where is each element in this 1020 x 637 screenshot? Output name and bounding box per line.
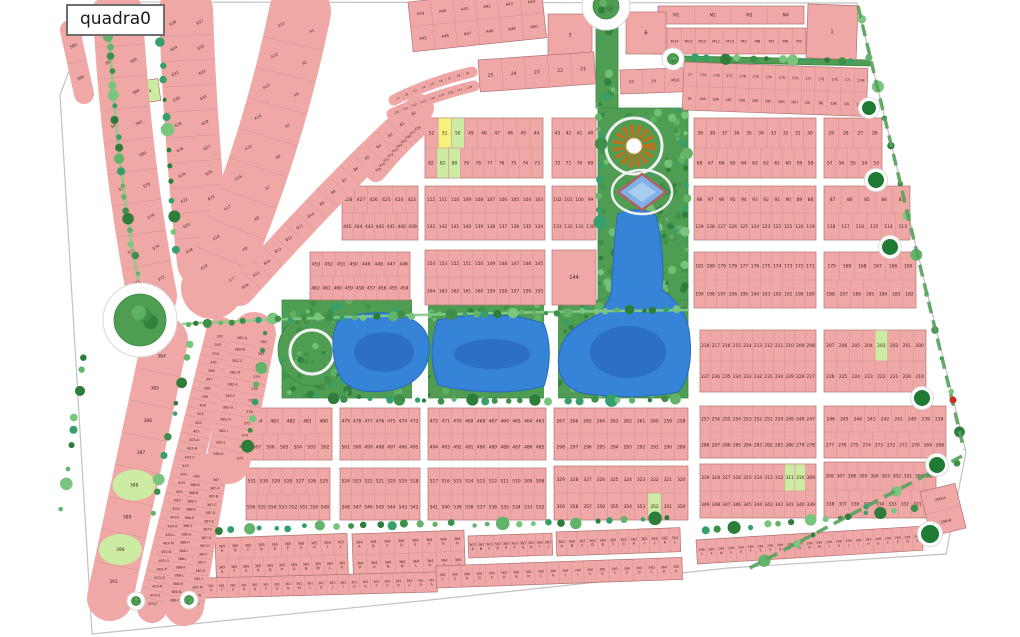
lot-label: 242: [881, 416, 890, 422]
tree-icon: [442, 388, 449, 395]
lot-label: 18D: [738, 98, 745, 102]
lot-label: A47: [463, 30, 471, 36]
tree-icon: [594, 308, 600, 314]
site-plan-map[interactable]: 5251504948474645448281807978777675747343…: [0, 0, 1020, 637]
lot-label: A41: [461, 6, 469, 12]
tree-icon: [136, 271, 140, 275]
lot-label: 204: [864, 343, 873, 349]
lot-label: 39: [697, 130, 703, 136]
lot-label: 367-D: [205, 511, 215, 515]
lot-label: 556: [247, 504, 256, 510]
lot-label: 169: [843, 263, 852, 269]
lot-label: 311: [785, 475, 794, 481]
lot-label: 152: [451, 261, 460, 267]
tree-icon: [563, 308, 573, 318]
lot-label: 318: [712, 475, 721, 481]
lot-label: 89: [797, 197, 803, 203]
tree-icon: [531, 521, 536, 526]
lot-label: 403-O: [158, 559, 169, 563]
lot-label: 482: [287, 418, 296, 424]
tree-icon: [58, 507, 63, 512]
tree-icon: [60, 477, 73, 490]
lot-label: 110: [451, 197, 460, 203]
lot-label: 315: [743, 475, 752, 481]
city-block: 363A363B363C363D363E363F363G363H363I363J: [468, 533, 553, 558]
tree-icon: [446, 308, 457, 319]
lot-label: 481: [303, 418, 312, 424]
lot-label: 338: [826, 501, 835, 507]
lot-label: 314: [754, 475, 763, 481]
lot-label: 91: [774, 197, 780, 203]
lot-label: 38: [710, 130, 716, 136]
tree-icon: [600, 150, 604, 154]
city-block: 10210110099133132131130: [552, 186, 596, 240]
lot-label: 530: [260, 478, 269, 484]
lot-label: 143: [427, 224, 436, 230]
lot-label: 87: [830, 197, 836, 203]
tree-icon: [176, 378, 187, 389]
lot-label: 18E: [752, 99, 759, 103]
lot-label: 267: [557, 418, 566, 424]
tree-icon: [324, 312, 333, 321]
lot-label: 454: [400, 285, 409, 291]
lot-label: 547: [353, 504, 362, 510]
tree-icon: [311, 361, 315, 365]
tree-icon: [304, 360, 309, 365]
lot-label: 231: [764, 374, 773, 380]
lot-label: 426: [369, 197, 378, 203]
tree-icon: [173, 411, 178, 416]
city-block: 5315305295285275265255565555545535525515…: [246, 468, 330, 520]
lot-label: 290: [664, 444, 673, 450]
lot-label: 513: [477, 478, 486, 484]
tree-icon: [438, 398, 445, 405]
map-canvas[interactable]: 5251504948474645448281807978777675747343…: [0, 0, 1020, 637]
lot-label: 193: [762, 291, 771, 297]
tree-icon: [599, 256, 604, 261]
lot-label: 543: [399, 504, 408, 510]
lot-label: 35: [746, 130, 752, 136]
lot-label: 505: [280, 444, 289, 450]
lot-label: 191: [784, 291, 793, 297]
lot-label: 283: [754, 442, 763, 448]
lot-label: 366-E: [184, 516, 194, 520]
lot-label: 197: [718, 291, 727, 297]
lot-label: 310: [796, 475, 805, 481]
lot-label: 26: [872, 130, 878, 136]
tree-icon: [602, 308, 608, 314]
lot-label: 56: [839, 160, 845, 166]
lot-label: 440: [398, 224, 407, 230]
lot-label: 294: [610, 444, 619, 450]
tree-icon: [684, 131, 688, 135]
tree-icon: [702, 526, 710, 534]
lot-label: 24: [511, 71, 517, 77]
tree-icon: [171, 229, 177, 235]
lot-label: 444: [354, 224, 363, 230]
lot-label: 382-B: [235, 347, 246, 351]
city-block: 2672662652642632622612602592582982972962…: [554, 408, 688, 460]
lot-label: 254: [733, 416, 742, 422]
lot-label: 252: [754, 416, 763, 422]
lot-label: 81: [440, 160, 446, 166]
tree-icon: [874, 507, 886, 519]
lot-label: 21: [580, 66, 586, 72]
lot-label: 19: [651, 78, 657, 83]
lot-label: 366-N: [171, 590, 181, 594]
lot-label: 262: [624, 418, 633, 424]
tree-icon: [432, 522, 437, 527]
lot-label: 483: [270, 418, 279, 424]
lot-label: 108: [475, 197, 484, 203]
tree-icon: [314, 313, 322, 321]
lot-label: 131: [575, 224, 584, 230]
tree-icon: [360, 315, 366, 321]
lot-label: 171: [806, 263, 815, 269]
lot-label: 393: [214, 343, 221, 347]
lot-label: 54: [862, 160, 868, 166]
tree-icon: [215, 527, 223, 535]
lot-label: 366-F: [183, 524, 192, 528]
tree-icon: [641, 517, 645, 521]
lot-label: 17J: [819, 77, 824, 81]
lot-label: 462: [311, 285, 320, 291]
tree-icon: [66, 467, 71, 472]
lot-label: 281: [775, 442, 784, 448]
tree-icon: [564, 397, 571, 404]
lot-label: 111: [439, 197, 448, 203]
tree-icon: [596, 127, 600, 131]
lot-label: 522: [364, 478, 373, 484]
lot-label: 452: [325, 261, 334, 267]
tree-icon: [663, 307, 669, 313]
lot-label: 367: [213, 478, 219, 482]
lot-label: 288: [701, 442, 710, 448]
lot-label: 303: [881, 473, 890, 479]
tree-icon: [108, 89, 119, 100]
lot-label: 32: [783, 130, 789, 136]
lot-label: 333: [888, 501, 897, 507]
lot-label: 201: [903, 343, 912, 349]
tree-icon: [661, 394, 669, 402]
tree-icon: [275, 316, 281, 322]
lot-label: 141: [451, 224, 460, 230]
lot-label: 350: [677, 504, 686, 510]
tree-icon: [720, 54, 731, 65]
lot-label: 156: [523, 289, 532, 295]
lot-label: 495: [410, 444, 419, 450]
lot-label: 82: [428, 160, 434, 166]
lot-label: 194: [751, 291, 760, 297]
tree-icon: [570, 518, 581, 529]
lot-label: 157: [511, 289, 520, 295]
tree-icon: [312, 343, 319, 350]
roundabout: [662, 48, 684, 70]
lot-label: 355: [610, 504, 619, 510]
tree-icon: [492, 398, 498, 404]
lot-label: 174: [773, 263, 782, 269]
lot-label: 403-Q: [154, 576, 165, 580]
lot-label: 403-N: [161, 550, 172, 554]
tree-icon: [596, 519, 601, 524]
tree-icon: [332, 321, 334, 323]
tree-icon: [673, 163, 676, 166]
lot-label: 548: [342, 504, 351, 510]
lot-label: 549: [321, 504, 330, 510]
lot-label: 504: [294, 444, 303, 450]
lot-label: 253: [743, 416, 752, 422]
tree-icon: [545, 519, 552, 526]
tree-icon: [313, 394, 318, 399]
city-block: 170169168167166165188187186185184183182: [824, 252, 916, 308]
lot-label: 33: [771, 130, 777, 136]
lot-label: 228: [796, 374, 805, 380]
lot-label: 177: [740, 263, 749, 269]
lot-label: 538: [465, 504, 474, 510]
lot-label: A39: [416, 10, 424, 16]
tree-icon: [357, 395, 361, 399]
tree-icon: [345, 391, 348, 394]
tree-icon: [451, 397, 456, 402]
tree-icon: [615, 397, 621, 403]
lot-label: 367-L: [194, 577, 203, 581]
lot-label: 42: [566, 130, 572, 136]
lot-label: 388: [130, 482, 139, 488]
lot-label: 41: [577, 130, 583, 136]
tree-icon: [838, 57, 846, 65]
lot-label: 172: [795, 263, 804, 269]
lot-label: 297: [570, 444, 579, 450]
lot-label: 259: [664, 418, 673, 424]
tree-icon: [472, 523, 476, 527]
tree-icon: [929, 457, 945, 473]
lot-label: 553: [279, 504, 288, 510]
lot-label: 99: [588, 197, 594, 203]
tree-icon: [80, 354, 87, 361]
lot-label: 31: [795, 130, 801, 136]
pool-icon: [612, 170, 672, 214]
tree-icon: [322, 351, 325, 354]
lot-label: 154: [427, 261, 436, 267]
lot-label: 179: [718, 263, 727, 269]
tree-icon: [544, 398, 552, 406]
tree-icon: [675, 213, 681, 219]
lot-label: 30: [807, 130, 813, 136]
lot-label: 498: [376, 444, 385, 450]
tree-icon: [244, 523, 255, 534]
lot-label: 217: [712, 343, 721, 349]
lot-label: 367-B: [208, 495, 218, 499]
lot-label: 29: [828, 130, 834, 136]
tree-icon: [611, 87, 616, 92]
lot-label: 265: [583, 418, 592, 424]
tree-icon: [153, 474, 165, 486]
lot-label: 447: [387, 261, 396, 267]
lot-label: 506: [266, 444, 275, 450]
tree-icon: [121, 194, 127, 200]
lot-label: 353: [637, 504, 646, 510]
lot-label: 544: [387, 504, 396, 510]
lot-label: 17B: [713, 73, 720, 77]
tree-icon: [463, 313, 467, 317]
tree-icon: [493, 310, 501, 318]
lot-label: 212: [764, 343, 773, 349]
lot-label: 403-R: [152, 585, 163, 589]
tree-icon: [598, 37, 603, 42]
lot-label: 403-A: [189, 438, 200, 442]
lot-label: 501: [342, 444, 351, 450]
lot-label: 367-J: [197, 561, 206, 565]
lot-label: 367-A: [210, 486, 220, 490]
tree-icon: [682, 148, 693, 159]
lot-label: 66: [719, 160, 725, 166]
tree-icon: [167, 163, 172, 168]
tree-icon: [668, 114, 676, 122]
tree-icon: [252, 399, 259, 406]
city-block: 144: [552, 250, 596, 305]
tree-icon: [297, 357, 304, 364]
lot-label: 125: [740, 224, 749, 230]
lot-label: 202: [890, 343, 899, 349]
lot-label: 138: [487, 224, 496, 230]
lot-label: 287: [712, 442, 721, 448]
tree-icon: [352, 315, 358, 321]
tree-icon: [69, 426, 77, 434]
tree-icon: [415, 397, 420, 402]
lot-label: 551: [300, 504, 309, 510]
tree-icon: [576, 397, 584, 405]
lot-label: M11: [712, 39, 720, 43]
tree-icon: [160, 63, 166, 69]
tree-icon: [260, 348, 265, 353]
lot-label: 367-K: [195, 569, 205, 573]
lot-label: 79: [464, 160, 470, 166]
lot-label: 337: [838, 501, 847, 507]
lot-label: 188: [826, 291, 835, 297]
lot-label: 476: [376, 418, 385, 424]
tree-icon: [805, 514, 817, 526]
lot-label: 223: [864, 374, 873, 380]
tree-icon: [911, 504, 919, 512]
lot-label: 399: [201, 395, 208, 399]
tree-icon: [604, 78, 611, 85]
tree-icon: [602, 93, 610, 101]
lot-label: 510: [512, 478, 521, 484]
lot-label: 163: [439, 289, 448, 295]
lot-label: 112: [427, 197, 436, 203]
lot-label: 466: [501, 418, 510, 424]
lot-label: 358: [570, 504, 579, 510]
lot-label: 382-K: [213, 452, 224, 456]
lot-label: 537: [477, 504, 486, 510]
lot-label: 73: [534, 160, 540, 166]
lot-label: 278: [807, 442, 816, 448]
tree-icon: [668, 266, 676, 274]
lot-label: 209: [796, 343, 805, 349]
tree-icon: [673, 305, 681, 313]
lot-label: 306: [848, 473, 857, 479]
tree-icon: [69, 442, 75, 448]
tree-icon: [255, 317, 262, 324]
lot-label: M13: [685, 39, 694, 43]
lot-label: 250: [775, 416, 784, 422]
lot-label: 461: [322, 285, 331, 291]
lot-label: 77: [487, 160, 493, 166]
city-block: 3293283273263253243233223213203593583573…: [554, 466, 688, 520]
tree-icon: [673, 60, 676, 63]
tree-icon: [133, 600, 136, 603]
tree-icon: [788, 519, 794, 525]
tree-icon: [662, 233, 667, 238]
tree-icon: [824, 57, 830, 63]
lot-label: 403: [193, 429, 200, 433]
lot-label: 118: [827, 224, 836, 230]
lot-label: 109: [463, 197, 472, 203]
lot-label: 359: [557, 504, 566, 510]
lot-label: 403-I: [172, 507, 181, 511]
lot-label: 366-D: [186, 508, 196, 512]
lot-label: 260: [650, 418, 659, 424]
tree-icon: [670, 235, 675, 240]
lot-label: 327: [583, 477, 592, 483]
lot-label: 44: [534, 130, 540, 136]
tree-icon: [394, 394, 405, 405]
tree-icon: [675, 164, 678, 167]
tree-icon: [288, 318, 294, 324]
lot-label: 221: [890, 374, 899, 380]
tree-icon: [290, 386, 295, 391]
lot-label: 323: [637, 477, 646, 483]
city-block: 1717A17B17C17D17E17F17G17H17I17J17K17L17…: [682, 62, 868, 116]
lot-label: 18F: [765, 99, 771, 103]
tree-icon: [673, 228, 678, 233]
lot-label: 270: [911, 442, 920, 448]
lot-label: M10: [726, 39, 735, 43]
tree-icon: [580, 308, 586, 314]
tree-icon: [227, 526, 234, 533]
lot-label: 384: [157, 353, 166, 359]
tree-icon: [823, 516, 829, 522]
tree-icon: [339, 315, 345, 321]
lot-label: 273: [875, 442, 884, 448]
tree-icon: [315, 520, 325, 530]
lot-label: M7: [769, 39, 775, 43]
city-block: 7: [548, 14, 592, 58]
tree-icon: [160, 452, 167, 459]
city-block: M1M2M3M4: [658, 6, 804, 24]
lot-label: 324: [624, 477, 633, 483]
lot-label: 325: [610, 477, 619, 483]
lot-label: 382-F: [225, 394, 235, 398]
lot-label: 213: [754, 343, 763, 349]
tree-icon: [373, 313, 380, 320]
lot-label: 246: [827, 416, 836, 422]
lot-label: 102: [553, 197, 562, 203]
lot-label: 347: [722, 502, 731, 508]
tree-icon: [481, 397, 489, 405]
lake-water-deep: [590, 326, 666, 378]
lot-label: 471: [442, 418, 451, 424]
lot-label: 117: [841, 224, 850, 230]
tree-icon: [186, 322, 191, 327]
tree-icon: [848, 58, 854, 64]
tree-icon: [764, 56, 769, 61]
lot-label: 382-D: [230, 371, 241, 375]
lot-label: 17L: [845, 78, 851, 82]
lot-label: 400: [199, 404, 206, 408]
lot-label: A49: [508, 26, 516, 32]
roundabout: [103, 283, 177, 357]
